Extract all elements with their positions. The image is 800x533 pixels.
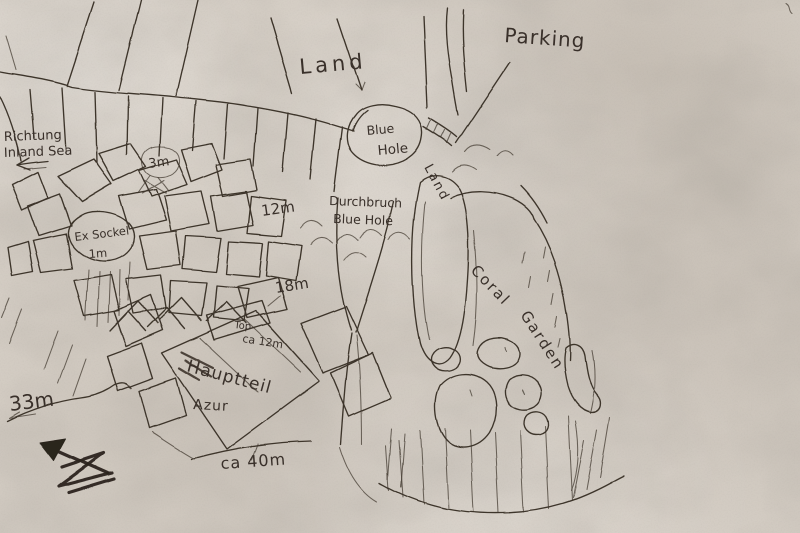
label-richtung-line1: Richtung xyxy=(4,128,62,145)
label-blue-hole-line2: Hole xyxy=(377,140,409,159)
label-durchbruch-line2: Blue Hole xyxy=(333,211,394,228)
label-durchbruch-line1: Durchbruch xyxy=(329,193,402,211)
label-richtung-line2: Inland Sea xyxy=(4,144,73,161)
label-top-block-line1: Top xyxy=(233,320,252,333)
map-canvas: Parking Land Richtung Inland Sea 3m Ex S… xyxy=(0,0,800,533)
label-blue-hole-line1: Blue xyxy=(366,121,395,138)
label-azur: Azur xyxy=(193,397,229,415)
label-depth-3m: 3m xyxy=(147,154,170,172)
dive-site-sketch-map: Parking Land Richtung Inland Sea 3m Ex S… xyxy=(0,0,800,533)
label-ex-sockel-line2: 1m xyxy=(88,246,107,261)
